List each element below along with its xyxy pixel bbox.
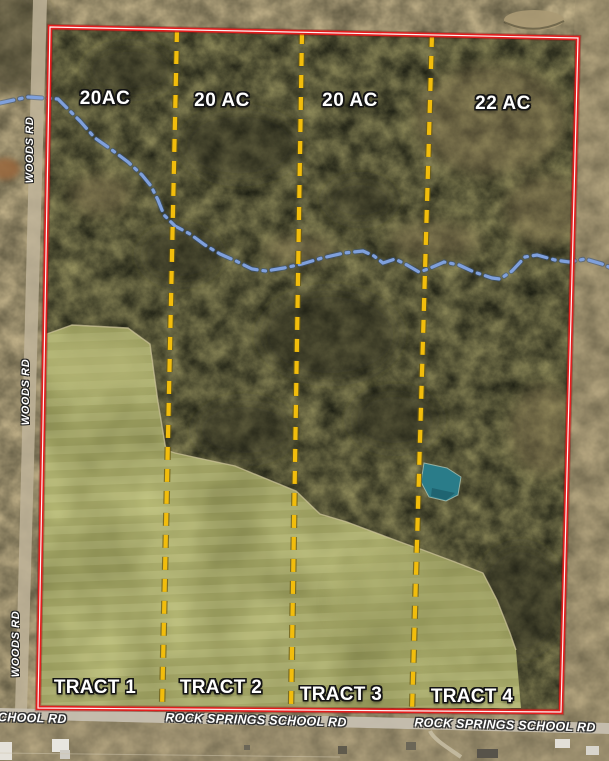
top-right-clearing [504, 10, 564, 30]
field-light-patch [40, 335, 150, 395]
aerial-tract-map: 20AC 20 AC 20 AC 22 AC TRACT 1 TRACT 2 T… [0, 0, 609, 761]
map-canvas [0, 0, 609, 761]
